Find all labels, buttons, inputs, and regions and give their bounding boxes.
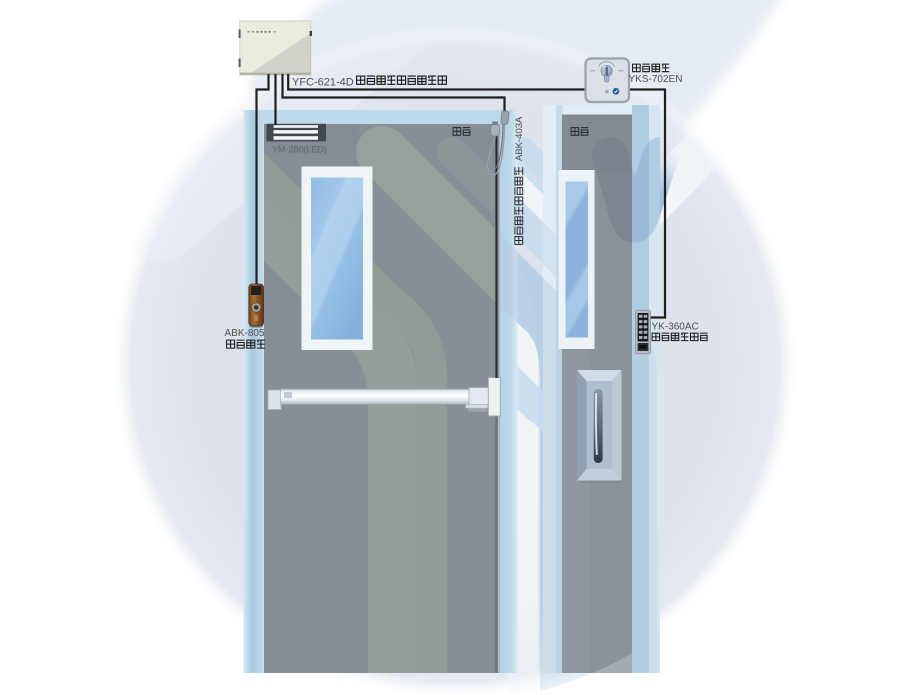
svg-text:ABK-403A: ABK-403A bbox=[514, 116, 525, 161]
svg-text:YKS-702EN: YKS-702EN bbox=[629, 74, 683, 85]
svg-text:YK-360AC: YK-360AC bbox=[652, 322, 699, 333]
svg-text:ABK-805: ABK-805 bbox=[224, 328, 264, 339]
svg-text:YM-280(LED): YM-280(LED) bbox=[272, 145, 327, 155]
svg-text:YFC-621-4D: YFC-621-4D bbox=[292, 77, 354, 89]
